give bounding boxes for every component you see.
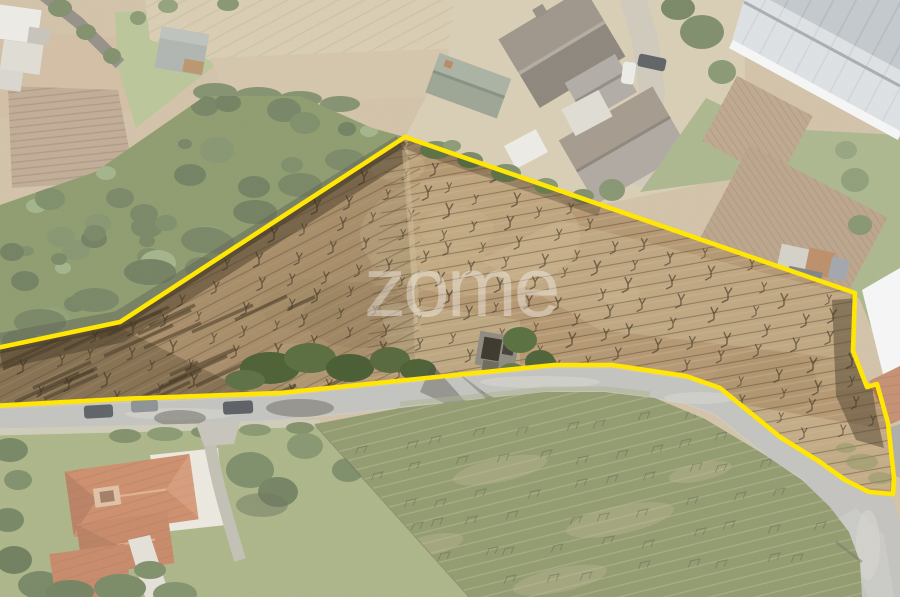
svg-text:zome: zome [364, 240, 557, 334]
